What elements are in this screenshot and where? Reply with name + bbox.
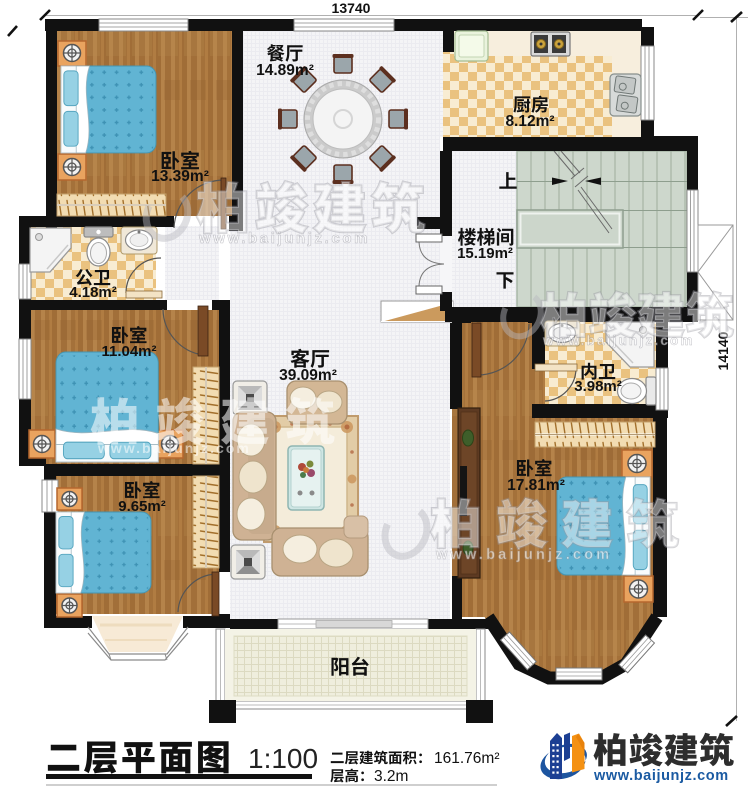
svg-text:11.04m²: 11.04m² bbox=[101, 343, 156, 360]
svg-text:www.baijunjz.com: www.baijunjz.com bbox=[593, 768, 729, 784]
svg-text:8.12m²: 8.12m² bbox=[505, 113, 554, 130]
svg-text:www.baijunjz.com: www.baijunjz.com bbox=[97, 440, 251, 456]
svg-text:13740: 13740 bbox=[332, 0, 371, 16]
svg-text:4.18m²: 4.18m² bbox=[69, 284, 117, 301]
svg-text:161.76m²: 161.76m² bbox=[434, 750, 499, 767]
svg-text:www.baijunjz.com: www.baijunjz.com bbox=[198, 230, 370, 247]
svg-text:13.39m²: 13.39m² bbox=[151, 168, 209, 185]
svg-text:15.19m²: 15.19m² bbox=[457, 245, 513, 262]
svg-text:3.98m²: 3.98m² bbox=[574, 378, 622, 395]
svg-text:17.81m²: 17.81m² bbox=[507, 477, 565, 494]
svg-text:3.2m: 3.2m bbox=[374, 768, 408, 785]
svg-text:www.baijunjz.com: www.baijunjz.com bbox=[542, 333, 695, 348]
svg-text:9.65m²: 9.65m² bbox=[118, 498, 166, 515]
svg-text:1:100: 1:100 bbox=[248, 743, 318, 774]
svg-text:www.baijunjz.com: www.baijunjz.com bbox=[435, 547, 612, 563]
svg-text:39.09m²: 39.09m² bbox=[279, 367, 337, 384]
svg-text:14.89m²: 14.89m² bbox=[256, 62, 314, 79]
